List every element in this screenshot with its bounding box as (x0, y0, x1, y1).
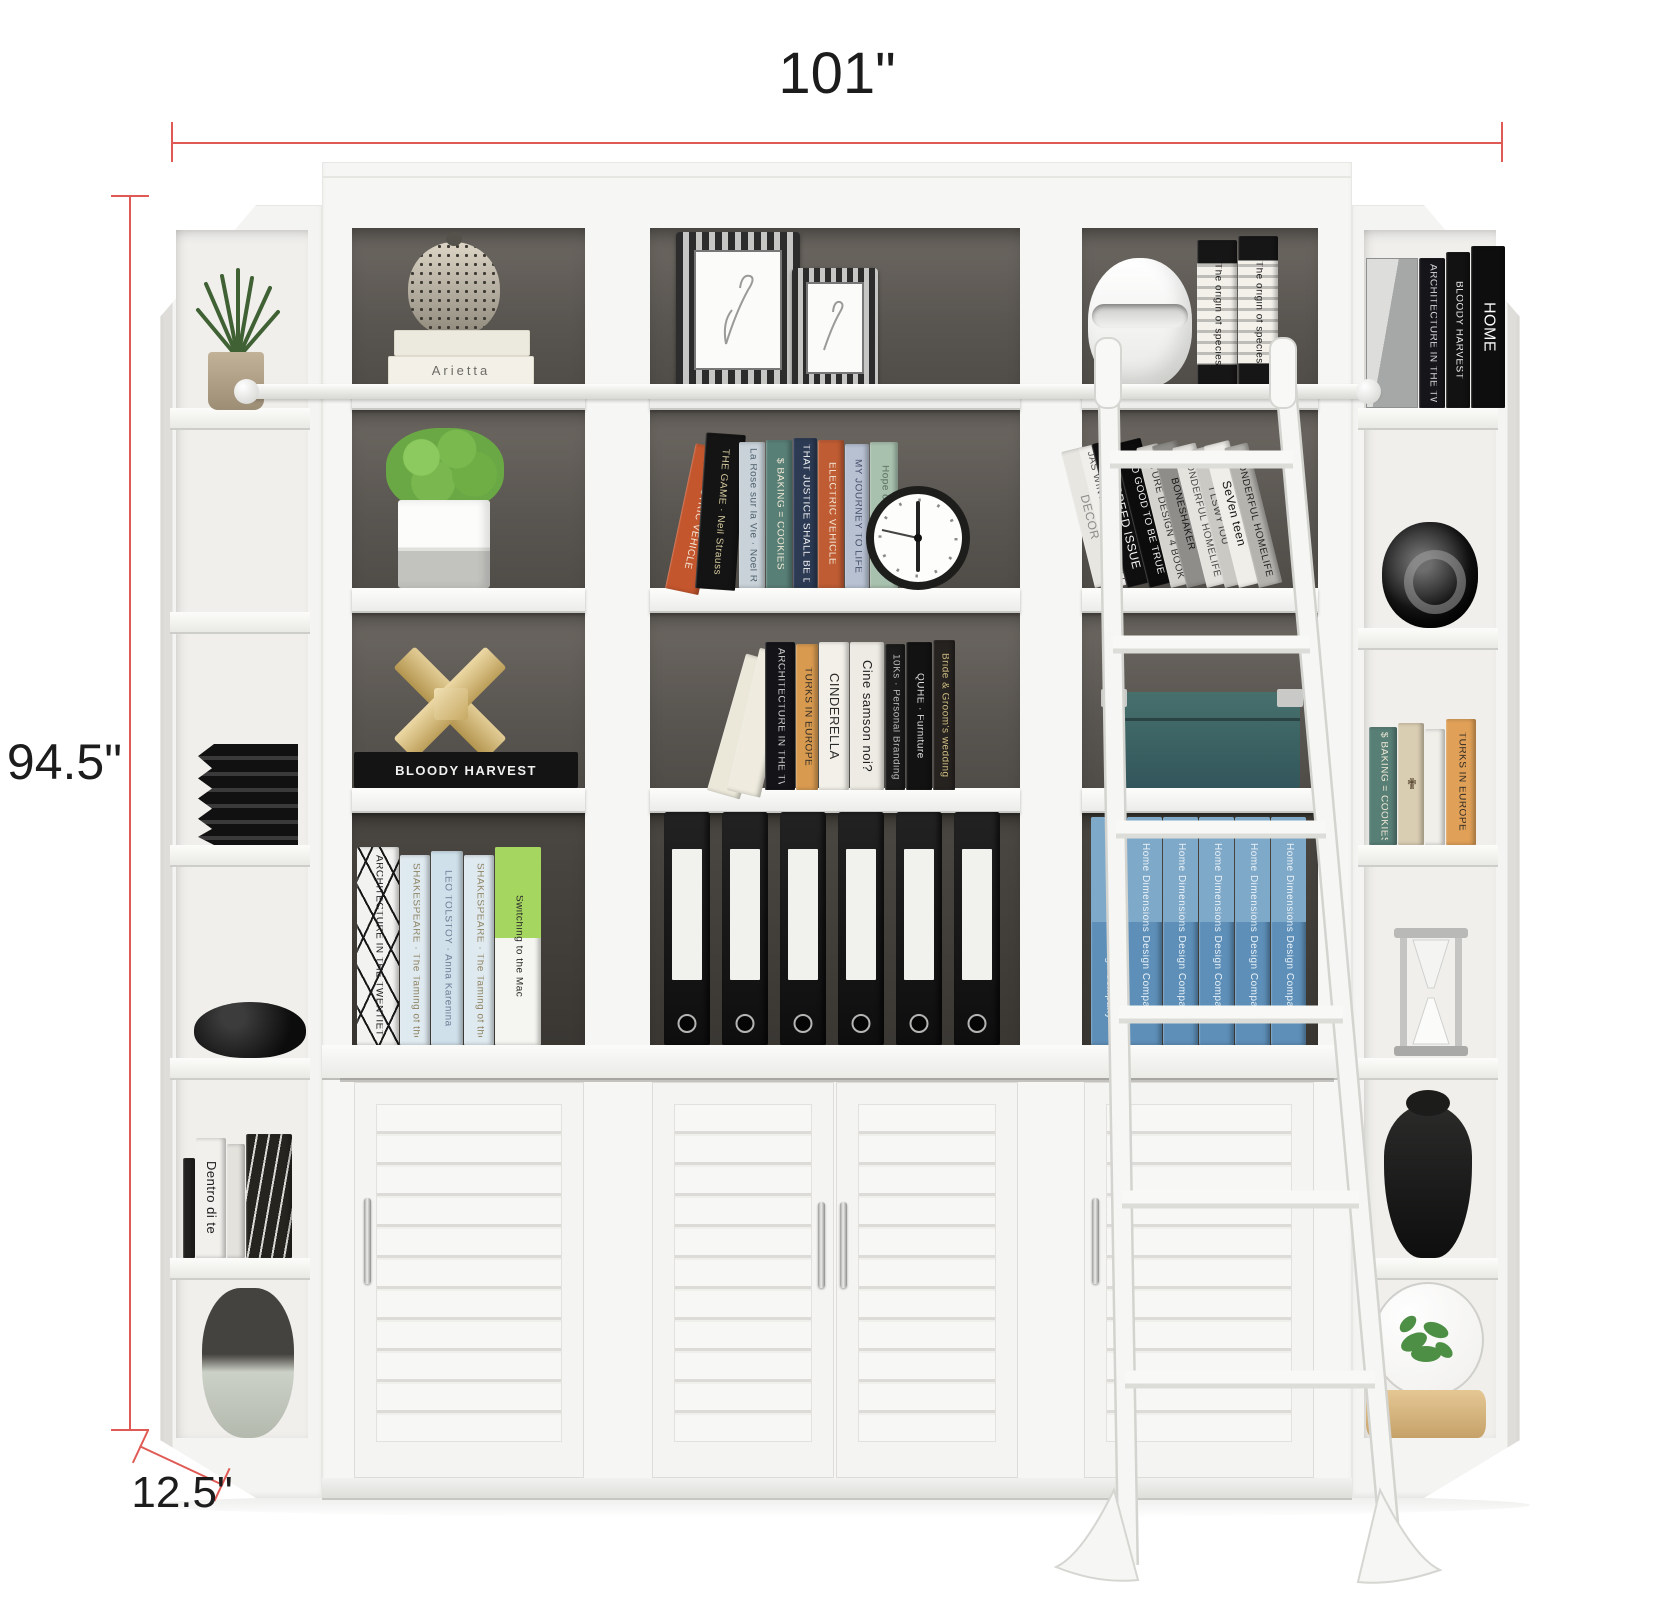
book-spine: LEO TOLSTOY · Anna Karenina (431, 851, 463, 1045)
left-corner-shelf-5 (170, 1258, 310, 1280)
left-corner-shelf-4 (170, 1058, 310, 1080)
ladder-feet (1056, 1490, 1440, 1583)
book-spine: 10Ks · Personal Branding (885, 644, 905, 790)
height-dimension-tick-bottom (111, 1429, 149, 1431)
book-stack-title: Arietta (432, 363, 491, 378)
bay2-right-door-handle[interactable] (840, 1202, 847, 1288)
vase-knob (446, 232, 462, 246)
book-spine: La Rose sur la Vie · Noel Rieger (739, 442, 765, 588)
bloody-harvest-title: BLOODY HARVEST (395, 763, 537, 778)
ladder-hooks (1095, 338, 1296, 408)
bay1-shelf-3 (352, 788, 585, 813)
picture-frame-large (676, 232, 800, 388)
depth-dimension-tick-left (132, 1430, 149, 1463)
book-spine (246, 1134, 292, 1258)
book-spine: HOME (1471, 246, 1505, 408)
rail-finial-left (234, 379, 259, 404)
gold-puzzle-sculpture (382, 648, 518, 760)
left-corner-books: Dentro di te (182, 1134, 310, 1258)
speckled-vase (408, 242, 500, 336)
book-spine: Switching to the Mac (495, 847, 541, 1045)
width-dimension-label: 101" (687, 40, 987, 107)
black-binder (780, 812, 826, 1045)
picture-frame-small (792, 268, 878, 388)
book-spine: ARCHITECTURE IN THE TWENTIETH CENTURY (357, 847, 399, 1045)
bay1-door-handle[interactable] (364, 1198, 371, 1284)
book-spine (227, 1144, 245, 1258)
book-spine (183, 1158, 195, 1258)
white-planter-pot (398, 500, 490, 588)
width-dimension-line (172, 142, 1502, 144)
bay2-shelf3-books: ARCHITECTURE IN THE TWENTIETH CENTURYTUR… (706, 640, 966, 790)
book-spine: Bride & Groom's wedding (933, 640, 955, 790)
black-binder (664, 812, 710, 1045)
height-dimension-line (129, 196, 131, 1430)
library-ladder[interactable] (1040, 330, 1460, 1590)
black-stone-bowl (194, 1002, 306, 1058)
book-spine: SHAKESPEARE · The Taming of the Shrew (464, 855, 494, 1045)
black-binder (722, 812, 768, 1045)
black-ribbed-vase (198, 744, 298, 845)
depth-dimension-label: 12.5" (112, 1468, 252, 1518)
bloody-harvest-book: BLOODY HARVEST (354, 752, 578, 788)
height-dimension-label: 94.5" (0, 733, 122, 791)
bay2-left-door-handle[interactable] (818, 1202, 825, 1288)
bay2-binders (664, 810, 1010, 1045)
book-spine: $ BAKING = COOKIES (766, 440, 792, 588)
plant-pot (208, 352, 264, 410)
book-spine: CINDERELLA (819, 642, 849, 790)
bay1-shelf-2 (352, 588, 585, 613)
product-dimension-image: 101" 94.5" 12.5" (0, 0, 1677, 1605)
black-binder (896, 812, 942, 1045)
bay2-louver-door-right[interactable] (836, 1082, 1018, 1478)
book-spine: Cine samson noi? (850, 642, 884, 790)
width-dimension-tick-left (171, 122, 173, 162)
book-spine: TURKS IN EUROPE (796, 644, 818, 790)
bay2-shelf-2 (650, 588, 1020, 613)
bay2-left-louver-slats (674, 1104, 812, 1442)
bay2-right-louver-slats (858, 1104, 996, 1442)
bay2-louver-door-left[interactable] (652, 1082, 834, 1478)
height-dimension-tick-top (111, 195, 149, 197)
book-spine: ARCHITECTURE IN THE TWENTIETH CENTURY (765, 642, 795, 790)
bay1-louver-door[interactable] (354, 1082, 584, 1478)
book-spine: SHAKESPEARE · The Taming of the Shrew (400, 855, 430, 1045)
book-spine: THAT JUSTICE SHALL BE DONE (793, 438, 817, 588)
left-corner-shelf-2 (170, 612, 310, 634)
left-corner-shelf-3 (170, 845, 310, 867)
book-spine: QUHE · Furniture (906, 642, 932, 790)
two-tone-vase (202, 1288, 294, 1438)
book-spine: ELECTRIC VEHICLE (818, 440, 844, 588)
width-dimension-tick-right (1501, 122, 1503, 162)
bay1-louver-slats (376, 1104, 562, 1442)
white-book-stack: Arietta (388, 330, 532, 385)
left-corner-shelf-1 (170, 408, 310, 430)
black-binder (838, 812, 884, 1045)
bay1-shelf4-books: ARCHITECTURE IN THE TWENTIETH CENTURYSHA… (356, 845, 582, 1045)
black-wall-clock (866, 486, 970, 590)
book-spine: Dentro di te (196, 1138, 226, 1258)
black-binder (954, 812, 1000, 1045)
crown-edge (322, 176, 1352, 178)
